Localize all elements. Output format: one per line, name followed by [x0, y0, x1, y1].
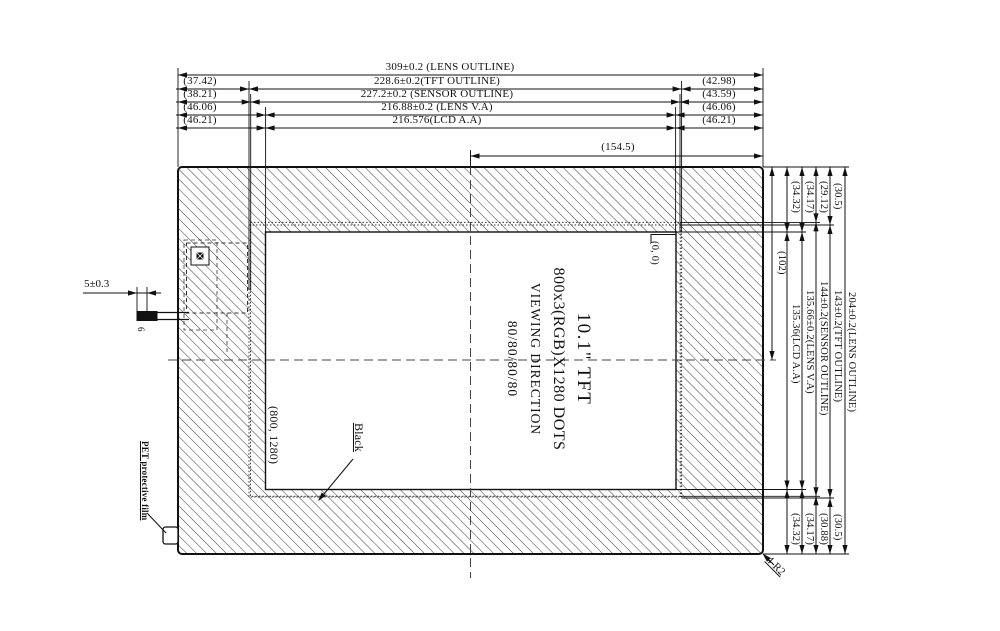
- panel-dots-label: 800x3(RGB)X1280 DOTS: [547, 230, 570, 488]
- lcd-outline-drawing: 309±0.2 (LENS OUTLINE) (37.42) 228.6±0.2…: [0, 0, 1000, 631]
- panel-info-block: 10.1" TFT 800x3(RGB)X1280 DOTS VIEWING D…: [500, 230, 596, 488]
- origin-label: (0, 0): [648, 236, 672, 254]
- pet-film-tab: [163, 527, 178, 544]
- dim-lens-outline-height: 204±0.2(LENS OUTLINE): [845, 287, 965, 305]
- dim-fpc-width: 5±0.3: [84, 278, 109, 291]
- dim-sensor-right-margin: (43.59): [702, 88, 735, 101]
- dim-tft-bottom-margin: (30.5): [831, 509, 858, 527]
- viewing-direction-label: VIEWING DIRECTION: [523, 230, 547, 488]
- black-label: Black: [352, 421, 381, 439]
- pet-film-label: PET protective film: [139, 436, 218, 454]
- resolution-corner-label: (800, 1280): [267, 404, 325, 422]
- viewing-angles-label: 80/80/80/80: [502, 230, 523, 488]
- dim-sensor-outline-width: 227.2±0.2 (SENSOR OUTLINE): [361, 88, 513, 101]
- dim-lens-outline-width: 309±0.2 (LENS OUTLINE): [386, 61, 515, 74]
- dim-lens-va-right-margin: (46.06): [702, 101, 735, 114]
- dim-lens-va-left-margin: (46.06): [183, 101, 216, 114]
- dim-tft-right-margin: (42.98): [702, 75, 735, 88]
- fpc-mark-label: 6: [136, 322, 141, 340]
- dim-lcd-aa-left-margin: (46.21): [183, 114, 216, 127]
- fpc-connector: [137, 311, 158, 321]
- dim-tft-top-margin: (30.5): [831, 178, 858, 196]
- dim-lcd-aa-width: 216.576(LCD A.A): [392, 114, 481, 127]
- dim-tft-outline-width: 228.6±0.2(TFT OUTLINE): [374, 75, 500, 88]
- dim-lcd-aa-right-margin: (46.21): [702, 114, 735, 127]
- panel-size-label: 10.1" TFT: [570, 230, 596, 488]
- dim-lens-va-width: 216.88±0.2 (LENS V.A): [381, 101, 493, 114]
- dim-tft-left-margin: (37.42): [183, 75, 216, 88]
- dim-sensor-left-margin: (38.21): [183, 88, 216, 101]
- dim-half-width: (154.5): [601, 141, 634, 154]
- dim-half-height: (102): [775, 246, 799, 264]
